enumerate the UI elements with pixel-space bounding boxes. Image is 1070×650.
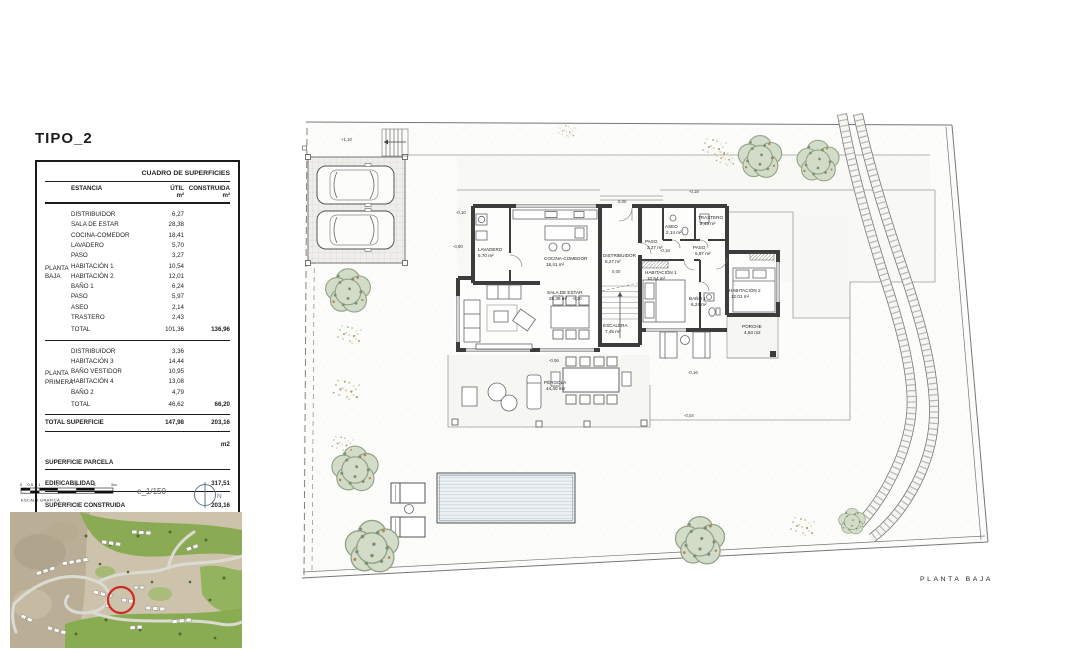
svg-text:-0,10: -0,10 (456, 210, 466, 215)
site-plan-image (10, 512, 242, 648)
svg-text:PORCHE: PORCHE (742, 324, 762, 329)
svg-text:-0,90: -0,90 (453, 244, 463, 249)
table-groups: PLANTABAJADISTRIBUIDOR6,27SALA DE ESTAR2… (45, 204, 230, 415)
svg-text:N: N (217, 493, 222, 500)
table-row: DISTRIBUIDOR3,36 (71, 347, 230, 357)
svg-text:6,24 m²: 6,24 m² (691, 302, 707, 307)
plan-title: PLANTA BAJA (920, 576, 993, 583)
group-label: PLANTABAJA (45, 210, 71, 336)
group-total-row: TOTAL101,36136,96 (71, 325, 230, 335)
svg-text:HABITACIÓN 1: HABITACIÓN 1 (645, 269, 677, 275)
north-arrow-icon: N (188, 477, 226, 515)
pool (437, 473, 575, 523)
table-title: CUADRO DE SUPERFICIES (45, 166, 230, 182)
svg-text:2,14 m²: 2,14 m² (666, 230, 682, 235)
table-row: HABITACIÓN 314,44 (71, 357, 230, 367)
svg-text:4: 4 (94, 482, 97, 487)
page-title: TIPO_2 (35, 130, 93, 147)
svg-text:+1,10: +1,10 (341, 137, 352, 142)
table-row: HABITACIÓN 110,54 (71, 262, 230, 272)
svg-text:ASEO: ASEO (665, 224, 678, 229)
svg-text:10,54 m²: 10,54 m² (647, 276, 666, 281)
svg-text:5,70 m²: 5,70 m² (478, 253, 494, 258)
svg-text:-0,04: -0,04 (684, 413, 694, 418)
svg-text:44,40 m2: 44,40 m2 (546, 386, 566, 391)
svg-text:28,38 m²: 28,38 m² (549, 296, 568, 301)
table-row: BAÑO 16,24 (71, 282, 230, 292)
car (317, 209, 394, 252)
svg-text:HABITACIÓN 2: HABITACIÓN 2 (729, 287, 761, 293)
porch-column (770, 351, 776, 357)
table-row: BAÑO 24,79 (71, 388, 230, 398)
table-row: PASO5,97 (71, 293, 230, 303)
svg-text:-0,16: -0,16 (688, 370, 698, 375)
svg-text:DISTRIBUIDOR: DISTRIBUIDOR (603, 253, 637, 258)
wardrobe (642, 261, 668, 268)
svg-text:LAVADERO: LAVADERO (478, 247, 503, 252)
svg-text:-0,18: -0,18 (660, 248, 670, 253)
svg-text:0,5: 0,5 (27, 482, 32, 487)
col-construida: CONSTRUIDAm² (184, 186, 230, 199)
svg-text:6,27 m²: 6,27 m² (605, 259, 621, 264)
table-row: COCINA-COMEDOR18,41 (71, 231, 230, 241)
table-row: DISTRIBUIDOR6,27 (71, 210, 230, 220)
svg-text:PASO: PASO (693, 245, 706, 250)
unit-label: m2 (45, 442, 230, 449)
col-util: ÚTILm² (154, 186, 184, 199)
svg-text:0,00: 0,00 (612, 269, 621, 274)
svg-text:-0,30: -0,30 (572, 296, 582, 301)
col-estancia: ESTANCIA (71, 186, 154, 199)
svg-text:PÉRGOLA: PÉRGOLA (544, 379, 567, 385)
svg-text:-0,18: -0,18 (689, 189, 699, 194)
floor-plan: LAVADERO5,70 m² COCINA-COMEDOR18,41 m² D… (285, 105, 1070, 605)
svg-text:BAÑO 1: BAÑO 1 (689, 295, 706, 301)
svg-text:2: 2 (57, 482, 59, 487)
svg-text:3: 3 (75, 482, 77, 487)
svg-text:5m: 5m (111, 482, 116, 487)
table-row: ASEO2,14 (71, 303, 230, 313)
table-row: PASO3,27 (71, 251, 230, 261)
parking-terrace (306, 155, 408, 266)
table-group: PLANTABAJADISTRIBUIDOR6,27SALA DE ESTAR2… (45, 204, 230, 341)
svg-text:5,97 m²: 5,97 m² (695, 251, 711, 256)
svg-text:1: 1 (38, 482, 40, 487)
svg-text:2,43 m²: 2,43 m² (700, 221, 716, 226)
table-row: HABITACIÓN 212,01 (71, 272, 230, 282)
table-row: BAÑO VESTIDOR10,95 (71, 367, 230, 377)
group-total-row: TOTAL46,6266,20 (71, 400, 230, 410)
scale-caption: ESCALA GRAFICA (21, 498, 60, 503)
table-row: TRASTERO2,43 (71, 313, 230, 323)
table-row: HABITACIÓN 413,08 (71, 378, 230, 388)
wardrobe (750, 253, 774, 260)
svg-text:ESCALERA: ESCALERA (603, 323, 628, 328)
total-superficie-row: TOTAL SUPERFICIE 147,98 203,16 (45, 415, 230, 432)
table-row: LAVADERO5,70 (71, 241, 230, 251)
svg-text:12,01 m²: 12,01 m² (731, 294, 750, 299)
svg-text:0: 0 (20, 482, 23, 487)
surfaces-table: CUADRO DE SUPERFICIES ESTANCIA ÚTILm² CO… (35, 160, 240, 525)
svg-text:4,63 m2: 4,63 m2 (744, 330, 761, 335)
summary-row: SUPERFICIE PARCELA (45, 460, 230, 471)
svg-text:PASO: PASO (645, 239, 658, 244)
table-column-headers: ESTANCIA ÚTILm² CONSTRUIDAm² (45, 182, 230, 204)
svg-text:COCINA-COMEDOR: COCINA-COMEDOR (544, 256, 588, 261)
scale-bar: 0 0,5 1 2 3 4 5m ESCALA GRAFICA (14, 479, 134, 507)
svg-text:0,00: 0,00 (618, 199, 627, 204)
car (317, 164, 394, 207)
scale-ratio: e_1/150 (137, 487, 166, 496)
table-group: PLANTAPRIMERADISTRIBUIDOR3,36HABITACIÓN … (45, 341, 230, 416)
svg-text:TRASTERO: TRASTERO (698, 215, 723, 220)
table-row: SALA DE ESTAR28,38 (71, 220, 230, 230)
svg-text:18,41 m²: 18,41 m² (546, 262, 565, 267)
svg-text:7,45 m²: 7,45 m² (605, 329, 621, 334)
group-label: PLANTAPRIMERA (45, 347, 71, 411)
svg-text:-0,06: -0,06 (549, 358, 559, 363)
svg-text:SALA DE ESTAR: SALA DE ESTAR (547, 290, 583, 295)
drawing-sheet: TIPO_2 CUADRO DE SUPERFICIES ESTANCIA ÚT… (0, 0, 1070, 650)
